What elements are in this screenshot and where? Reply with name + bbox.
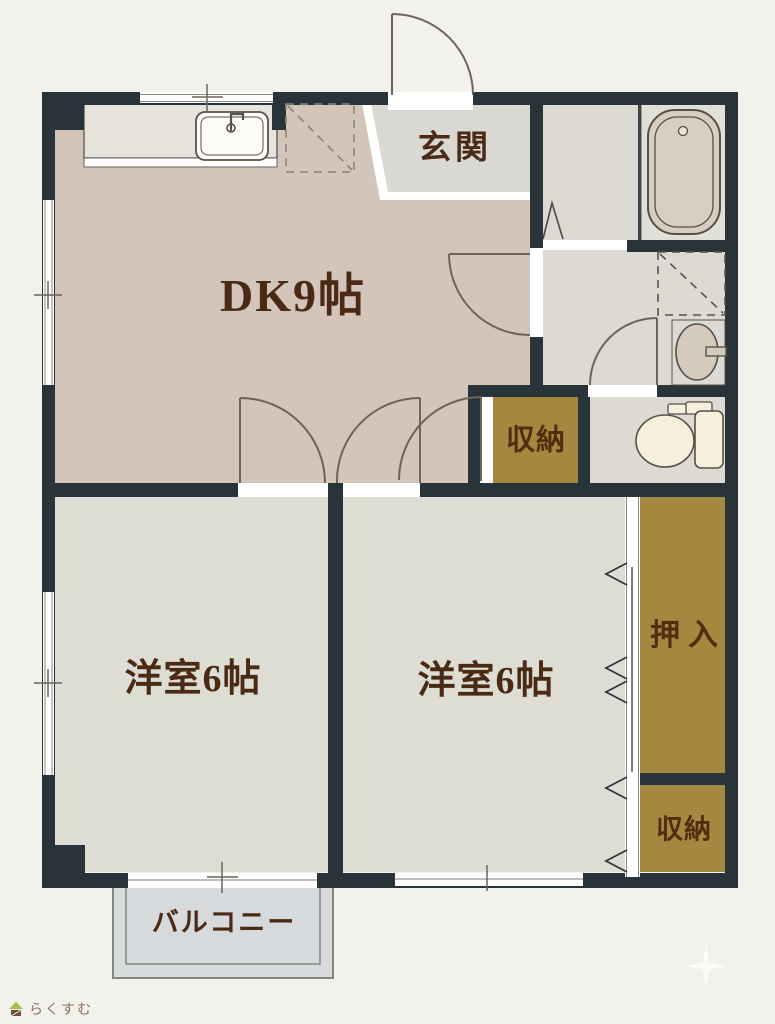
washroom-door-opening xyxy=(530,248,543,337)
bedroom1-label: 洋室6帖 xyxy=(124,660,261,698)
house-logo-icon xyxy=(8,1001,24,1017)
wall-kitchen-stub xyxy=(272,92,286,130)
closet-br-label: 収納 xyxy=(656,817,712,844)
entrance-sill xyxy=(388,105,473,110)
floorplan-image: DK9帖 玄関 洋室6帖 洋室6帖 収納 押入 収納 バルコニー らくすむ xyxy=(0,0,775,1024)
site-logo: らくすむ xyxy=(8,999,93,1019)
bedroom1-door-opening xyxy=(238,483,328,497)
kitchen-counter xyxy=(84,103,277,167)
wall-bedroom-divider xyxy=(328,483,343,873)
hall-floor xyxy=(543,105,638,250)
kitchen-sink-icon xyxy=(196,112,268,160)
wall-hall-bath-line xyxy=(638,105,642,240)
closet-mid-label: 収納 xyxy=(506,427,566,456)
wall-dk-hall xyxy=(530,105,543,248)
wall-oshiire-closet xyxy=(640,773,725,785)
genkan-label: 玄関 xyxy=(418,133,492,166)
floors xyxy=(48,98,725,978)
entrance-door-arc xyxy=(392,14,473,95)
hall-washroom-threshold xyxy=(543,240,627,250)
wall-bath-bottom xyxy=(627,240,725,252)
washbasin-icon xyxy=(672,320,726,385)
wall-dk-washroom-stub xyxy=(530,337,543,385)
bathtub-icon xyxy=(648,110,720,234)
oshiire-label: 押入 xyxy=(642,621,726,651)
toilet-door-opening xyxy=(588,385,657,397)
bedroom2-label: 洋室6帖 xyxy=(417,662,554,700)
wall-corner-bottomleft xyxy=(42,845,85,875)
wall-corner-topleft xyxy=(42,92,84,130)
logo-text: らくすむ xyxy=(29,999,93,1019)
wall-closet-toilet xyxy=(578,397,590,483)
dk-label: DK9帖 xyxy=(220,273,366,319)
bedroom2-door-opening xyxy=(343,483,420,497)
wall-closet-left xyxy=(468,397,480,483)
entrance-opening xyxy=(388,92,473,105)
floorplan-drawing xyxy=(0,0,775,1024)
balcony-label: バルコニー xyxy=(152,910,296,937)
